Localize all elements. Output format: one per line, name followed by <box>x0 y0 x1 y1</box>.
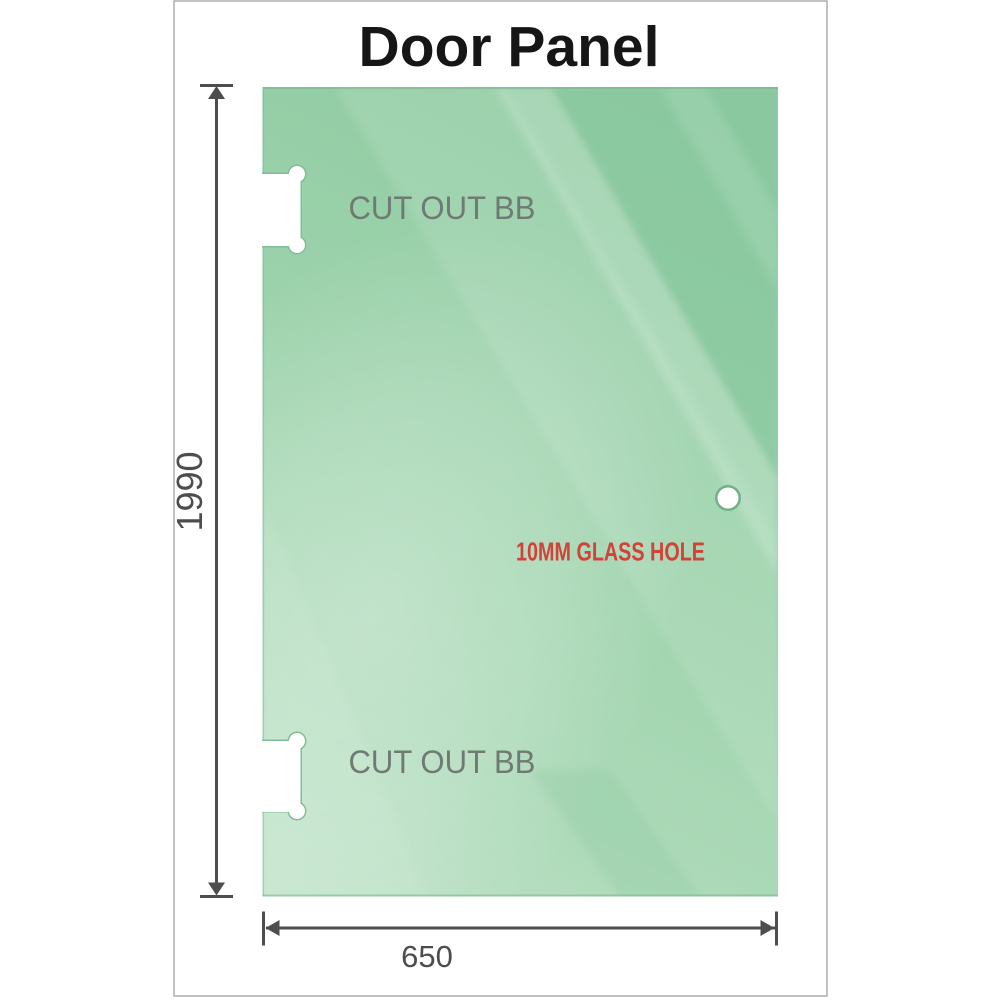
svg-text:Door Panel: Door Panel <box>359 15 660 79</box>
svg-text:650: 650 <box>401 939 453 974</box>
svg-text:CUT OUT BB: CUT OUT BB <box>349 190 536 226</box>
svg-text:10MM GLASS HOLE: 10MM GLASS HOLE <box>516 537 705 567</box>
svg-text:CUT OUT BB: CUT OUT BB <box>349 744 536 780</box>
svg-text:1990: 1990 <box>169 451 210 531</box>
